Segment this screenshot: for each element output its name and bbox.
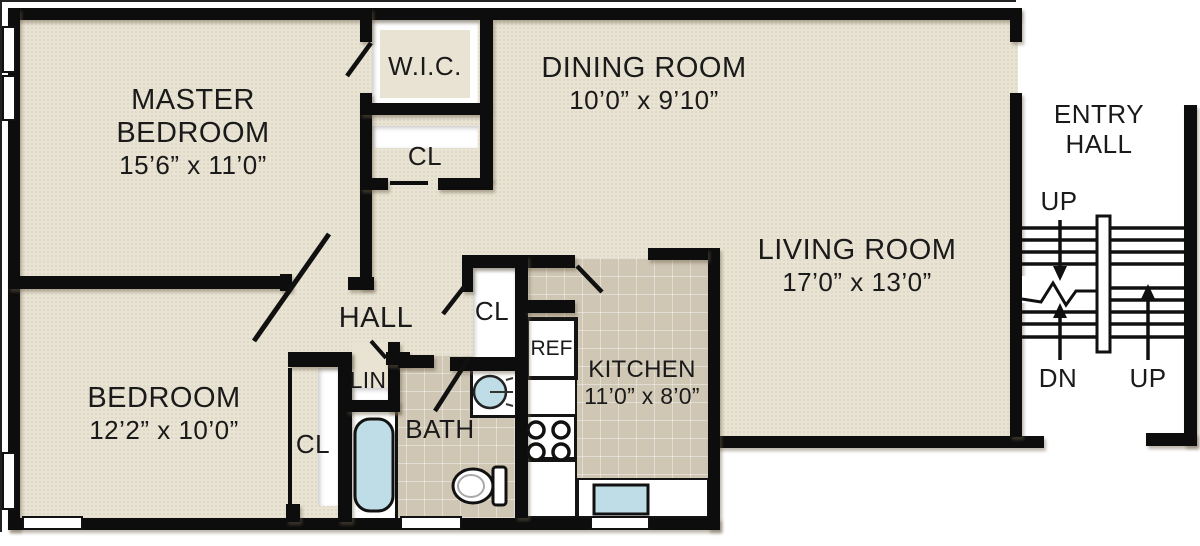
room-name: BEDROOM [116,117,269,150]
room-name: HALL [1065,129,1132,159]
closet-label: CL [467,296,517,326]
window-master-bedroom [2,26,16,73]
wall-closet-stub [438,178,493,190]
wall-entry-hall-east [1184,105,1197,446]
up-arrow-lower [1141,284,1155,360]
wall-cabinet-over-ref [525,300,575,313]
wall-kitchen-north [648,248,708,260]
wall-bath-closet-bottom [450,357,518,371]
bedroom-label: BEDROOM 12’2” x 10’0” [58,382,270,445]
refrigerator-label: REF [529,321,574,376]
wall-cap [280,274,292,291]
entry-hall-label: ENTRY HALL [1040,99,1158,159]
wall-bath-north-stub [398,355,434,368]
room-name: ENTRY [1054,99,1144,129]
wall-linen-bottom [346,400,400,412]
stair-treads [1022,228,1184,337]
wall-wic-bottom [360,103,490,115]
stair-break-band [1022,276,1097,303]
wall-kitchen-closet-stub [462,268,473,292]
wall-living-east-upper [1010,8,1022,42]
hall-label: HALL [330,302,422,335]
room-dimensions: 17’0” x 13’0” [782,267,932,297]
master-bedroom-label: MASTER BEDROOM 15’6” x 11’0” [88,84,298,180]
room-name: DINING ROOM [541,52,746,85]
wall-exterior-top [8,8,1020,20]
floor-plan: MASTER BEDROOM 15’6” x 11’0” DINING ROOM… [0,0,1200,546]
living-room-label: LIVING ROOM 17’0” x 13’0” [744,234,970,297]
window-bedroom-west [2,452,16,510]
wall-closet-east [480,115,493,181]
wall-bath-kitchen-divider [515,255,528,518]
wall-living-east [1010,93,1022,437]
linen-label: LIN [346,367,390,393]
room-name: BEDROOM [87,382,240,415]
window-bath [400,516,462,530]
wic-label: W.I.C. [372,51,478,81]
room-dimensions: 15’6” x 11’0” [119,150,267,180]
window-master-bedroom [2,75,16,121]
bath-label: BATH [400,414,480,444]
room-name: MASTER [131,84,255,117]
wall-bedroom-closet-stub [286,504,300,522]
room-name: LIVING ROOM [758,234,957,267]
room-dimensions: 11’0” x 8’0” [584,383,700,409]
wall-wic-west-upper [360,8,372,42]
room-name: KITCHEN [588,356,695,383]
wall-closet-stub [360,178,388,190]
closet-label: CL [288,429,338,459]
up-arrow-upper [1053,220,1067,281]
plan-edge-line [0,0,1016,2]
wall-closet-column-west [360,93,372,289]
tub-surround [352,412,398,518]
bathroom-vanity [470,366,518,418]
wall-wic-east [480,20,493,115]
stair-break-line [1022,283,1097,305]
stairs-up-label: UP [1038,186,1080,216]
room-dimensions: 12’2” x 10’0” [89,415,239,445]
wall-living-room-bottom [708,436,1044,448]
stair-railing [1097,216,1110,352]
stairs-up-label: UP [1124,363,1172,393]
closet-sliding-door [390,181,428,185]
room-dimensions: 10’0” x 9’10” [569,85,719,115]
window-kitchen [590,516,650,530]
window-bedroom-south [22,516,83,530]
kitchen-counter [525,460,577,518]
wall-cap [348,277,374,290]
down-arrow [1053,303,1067,360]
dining-room-label: DINING ROOM 10’0” x 9’10” [533,52,755,115]
closet-label: CL [372,141,478,171]
stairs-down-label: DN [1034,363,1082,393]
stove [525,414,577,460]
kitchen-counter-sink-run [577,478,709,518]
wall-bedroom-divider [8,276,284,289]
